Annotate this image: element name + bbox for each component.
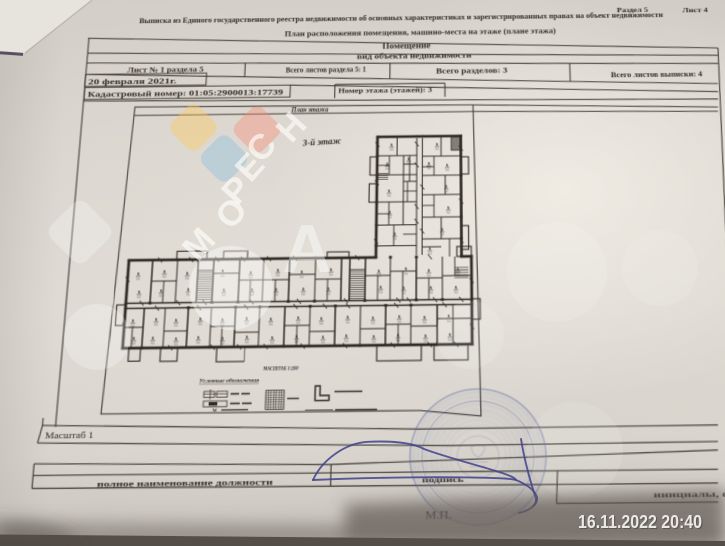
svg-text:16.11.2022 20:40: 16.11.2022 20:40	[578, 511, 702, 532]
svg-text:А: А	[282, 211, 331, 287]
